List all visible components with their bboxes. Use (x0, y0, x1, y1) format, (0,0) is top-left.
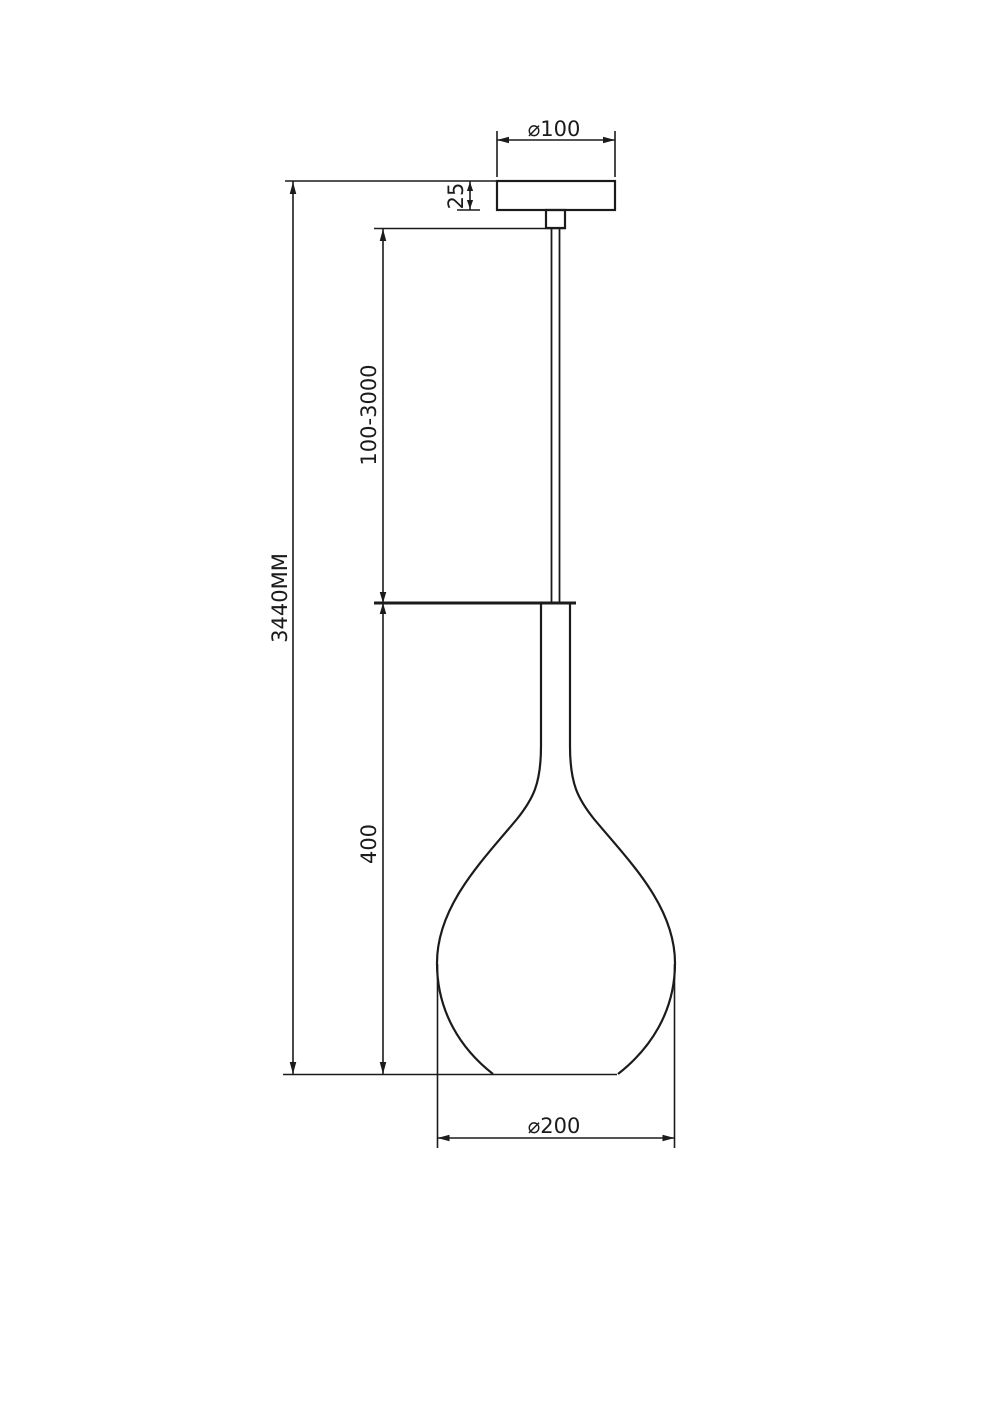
canopy-outline (497, 181, 615, 210)
glass-shade (374, 603, 675, 1074)
inner-dimension-line: 100-3000 400 (357, 229, 386, 1075)
arrow-down-icon (290, 1062, 297, 1074)
shade-height-label: 400 (357, 824, 381, 864)
arrow-up-icon (380, 229, 387, 241)
overall-height-dimension: 3440MM (268, 181, 296, 1074)
overall-height-label: 3440MM (268, 553, 292, 643)
canopy-diameter-dimension: ⌀100 (497, 117, 615, 177)
suspension-cord (552, 228, 560, 602)
cord-connector (546, 210, 565, 228)
arrow-left-icon (438, 1135, 450, 1141)
drawing-canvas: ⌀100 25 100-3000 400 3440MM (0, 0, 992, 1403)
arrow-up-icon (290, 182, 297, 194)
arrow-right-icon (603, 137, 615, 143)
connector-outline (546, 210, 565, 228)
shade-left-profile (437, 604, 541, 1074)
canopy-height-dimension: 25 (444, 181, 480, 210)
canopy-diameter-label: ⌀100 (528, 117, 581, 141)
arrow-right-icon (663, 1135, 675, 1141)
arrow-up-icon (380, 603, 387, 614)
shade-diameter-label: ⌀200 (528, 1114, 581, 1138)
arrow-left-icon (497, 137, 509, 143)
suspension-length-label: 100-3000 (357, 364, 381, 465)
pendant-lamp-technical-drawing: ⌀100 25 100-3000 400 3440MM (0, 0, 992, 1403)
arrow-down-icon (380, 592, 387, 603)
shade-right-profile (570, 604, 675, 1074)
canopy-height-label: 25 (444, 183, 468, 210)
arrow-down-icon (380, 1062, 387, 1074)
ceiling-canopy (497, 181, 615, 210)
